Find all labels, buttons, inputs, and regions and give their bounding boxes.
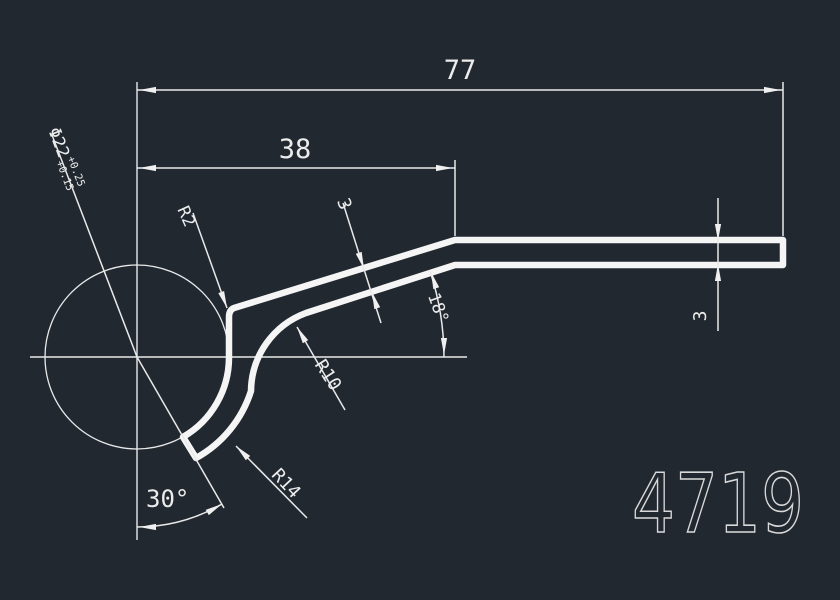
arrow-r10 (294, 325, 308, 343)
arrow-38-left (139, 165, 156, 171)
arrow-30-bottom (139, 524, 156, 530)
arrow-77-left (139, 87, 156, 93)
part-outline (183, 240, 783, 458)
dim-77-label: 77 (436, 57, 484, 84)
arrow-77-right (764, 87, 781, 93)
part-number: 4719 (632, 457, 804, 552)
drawing-layer: 4719 (0, 0, 840, 600)
arrow-r2 (218, 291, 230, 309)
dim-38-label: 38 (272, 136, 318, 163)
arrow-r14 (234, 444, 250, 460)
arrow-38-right (436, 165, 453, 171)
thickness-right-label: 3 (692, 306, 716, 326)
cad-drawing-canvas: 4719 77 38 Φ22 +0.25 +0.15 R2 3 18° R10 … (0, 0, 840, 600)
angle-30-label: 30° (146, 487, 189, 511)
centerlines (30, 82, 467, 540)
arrow-18-bottom (441, 338, 447, 355)
